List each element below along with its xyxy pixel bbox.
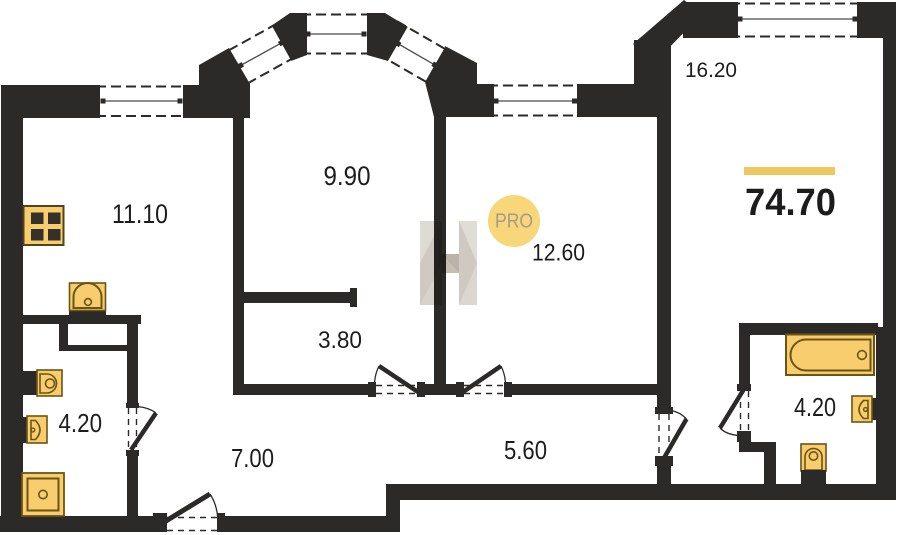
- svg-text:11.10: 11.10: [112, 199, 168, 229]
- svg-text:4.20: 4.20: [59, 408, 103, 438]
- svg-text:74.70: 74.70: [745, 182, 836, 224]
- svg-text:3.80: 3.80: [318, 327, 362, 354]
- svg-text:12.60: 12.60: [532, 240, 585, 267]
- svg-text:4.20: 4.20: [794, 392, 836, 422]
- svg-text:7.00: 7.00: [231, 443, 274, 473]
- svg-text:9.90: 9.90: [324, 161, 371, 191]
- svg-text:5.60: 5.60: [504, 435, 547, 465]
- svg-text:16.20: 16.20: [685, 59, 737, 82]
- svg-text:PRO: PRO: [495, 211, 533, 233]
